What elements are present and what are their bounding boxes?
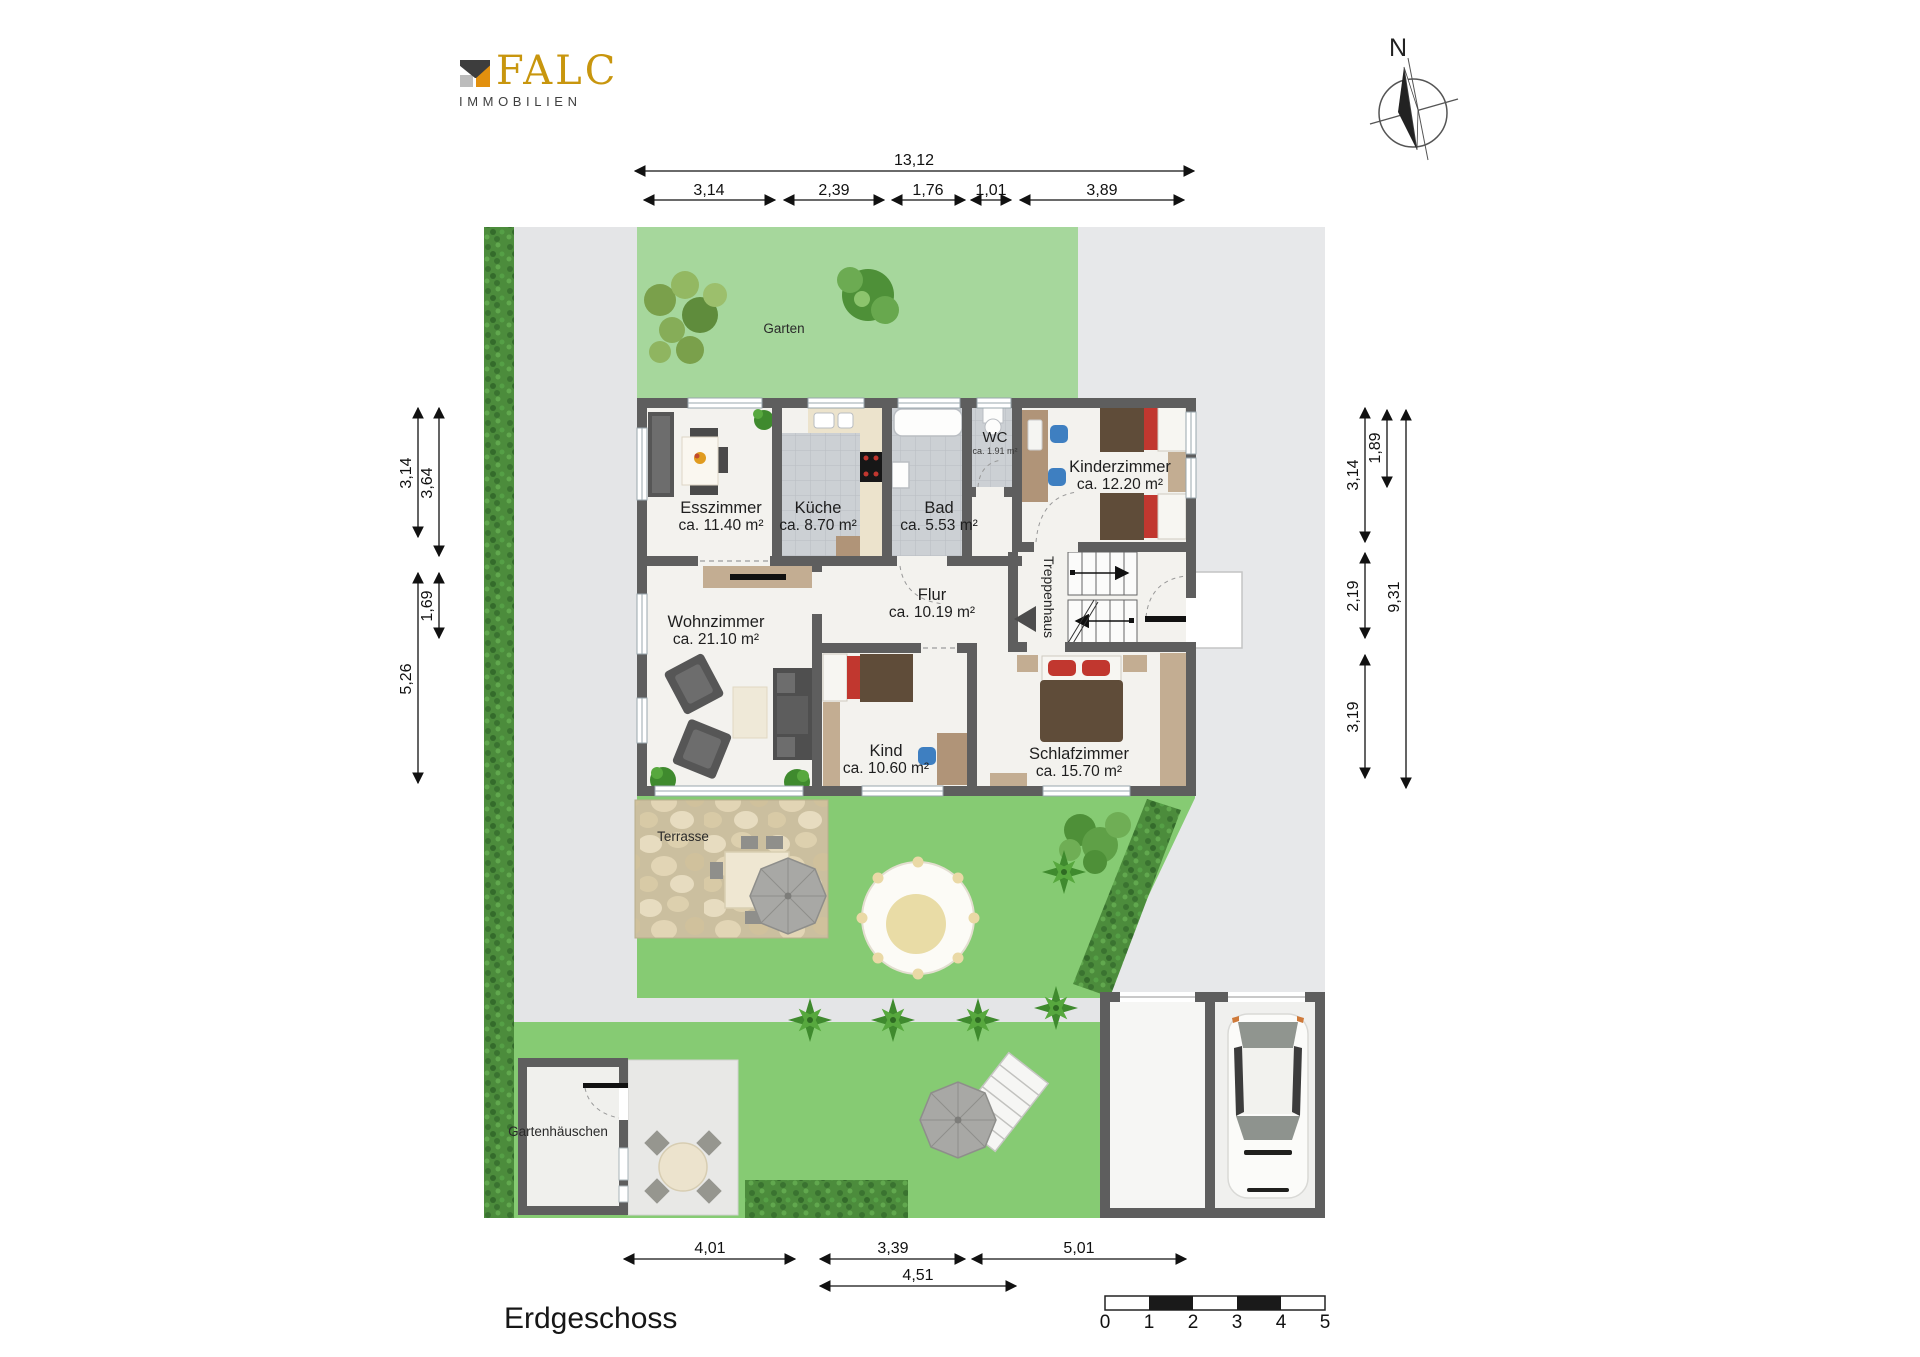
dim-left-outer-top: 3,14: [399, 443, 415, 503]
garden-label: Garten: [763, 321, 804, 336]
garden-shed-label: Gartenhäuschen: [508, 1124, 608, 1139]
room-label-wohnzimmer: Wohnzimmer ca. 21.10 m²: [668, 613, 765, 649]
floor-title: Erdgeschoss: [504, 1302, 677, 1336]
dim-right-outer: 9,31: [1387, 567, 1403, 627]
dim-left-inner-middle: 1,69: [420, 576, 436, 636]
parasol-icon: [750, 858, 826, 934]
garden-pool: [857, 857, 980, 980]
entry-door: [1145, 616, 1186, 622]
room-label-kind: Kind ca. 10.60 m²: [843, 742, 929, 778]
hedge-left: [484, 227, 514, 1218]
scale-label-1: 1: [1144, 1312, 1155, 1334]
floorplan-graphics: [0, 0, 1920, 1357]
dim-top-seg-2: 2,39: [818, 182, 849, 200]
dim-left-outer-bottom: 5,26: [399, 649, 415, 709]
compass-icon: [1370, 58, 1458, 160]
dim-bottom-seg-1: 4,01: [694, 1240, 725, 1258]
scale-label-4: 4: [1276, 1312, 1287, 1334]
dim-right-inner-middle: 2,19: [1346, 566, 1362, 626]
scale-label-5: 5: [1320, 1312, 1331, 1334]
dim-left-inner-top: 3,64: [420, 453, 436, 513]
room-area-wc: ca. 1.91 m²: [972, 446, 1017, 456]
car: [1228, 1014, 1308, 1198]
falc-logo-icon: [460, 60, 490, 88]
dim-top-seg-3: 1,76: [912, 182, 943, 200]
dim-right-mid: 1,89: [1368, 418, 1384, 478]
scale-label-2: 2: [1188, 1312, 1199, 1334]
hedge-bottom: [745, 1180, 908, 1218]
scale-label-3: 3: [1232, 1312, 1243, 1334]
floorplan-page: FALC IMMOBILIEN N 13,12 3,14 2,39 1,76 1…: [0, 0, 1920, 1357]
scale-label-0: 0: [1100, 1312, 1111, 1334]
dim-right-inner-bottom: 3,19: [1346, 687, 1362, 747]
terrace-label: Terrasse: [657, 829, 709, 844]
room-label-wc: WC: [983, 429, 1008, 446]
dim-top-seg-1: 3,14: [693, 182, 724, 200]
dim-bottom-seg-3: 5,01: [1063, 1240, 1094, 1258]
room-label-flur: Flur ca. 10.19 m²: [889, 586, 975, 622]
scale-bar: [1105, 1296, 1325, 1310]
room-label-kinderzimmer: Kinderzimmer ca. 12.20 m²: [1069, 458, 1171, 494]
dim-top-seg-5: 3,89: [1086, 182, 1117, 200]
room-label-kueche: Küche ca. 8.70 m²: [779, 499, 857, 535]
dim-bottom-seg-2: 3,39: [877, 1240, 908, 1258]
parasol-icon: [920, 1082, 996, 1158]
side-path: [514, 227, 637, 1022]
shed-door: [583, 1083, 628, 1088]
logo-subtext: IMMOBILIEN: [459, 94, 582, 109]
shed-patio: [628, 1060, 738, 1215]
room-label-bad: Bad ca. 5.53 m²: [900, 499, 978, 535]
dim-top-seg-4: 1,01: [975, 182, 1006, 200]
dim-right-inner-top: 3,14: [1346, 445, 1362, 505]
room-label-treppenhaus: Treppenhaus: [1041, 537, 1057, 657]
dim-top-total: 13,12: [894, 152, 934, 170]
entry-porch: [1192, 572, 1242, 648]
room-label-schlafzimmer: Schlafzimmer ca. 15.70 m²: [1029, 745, 1129, 781]
logo-text: FALC: [496, 48, 618, 94]
compass-north-label: N: [1389, 34, 1407, 63]
dim-bottom-row2: 4,51: [902, 1267, 933, 1285]
garage: [1100, 992, 1325, 1218]
room-label-esszimmer: Esszimmer ca. 11.40 m²: [678, 499, 763, 535]
